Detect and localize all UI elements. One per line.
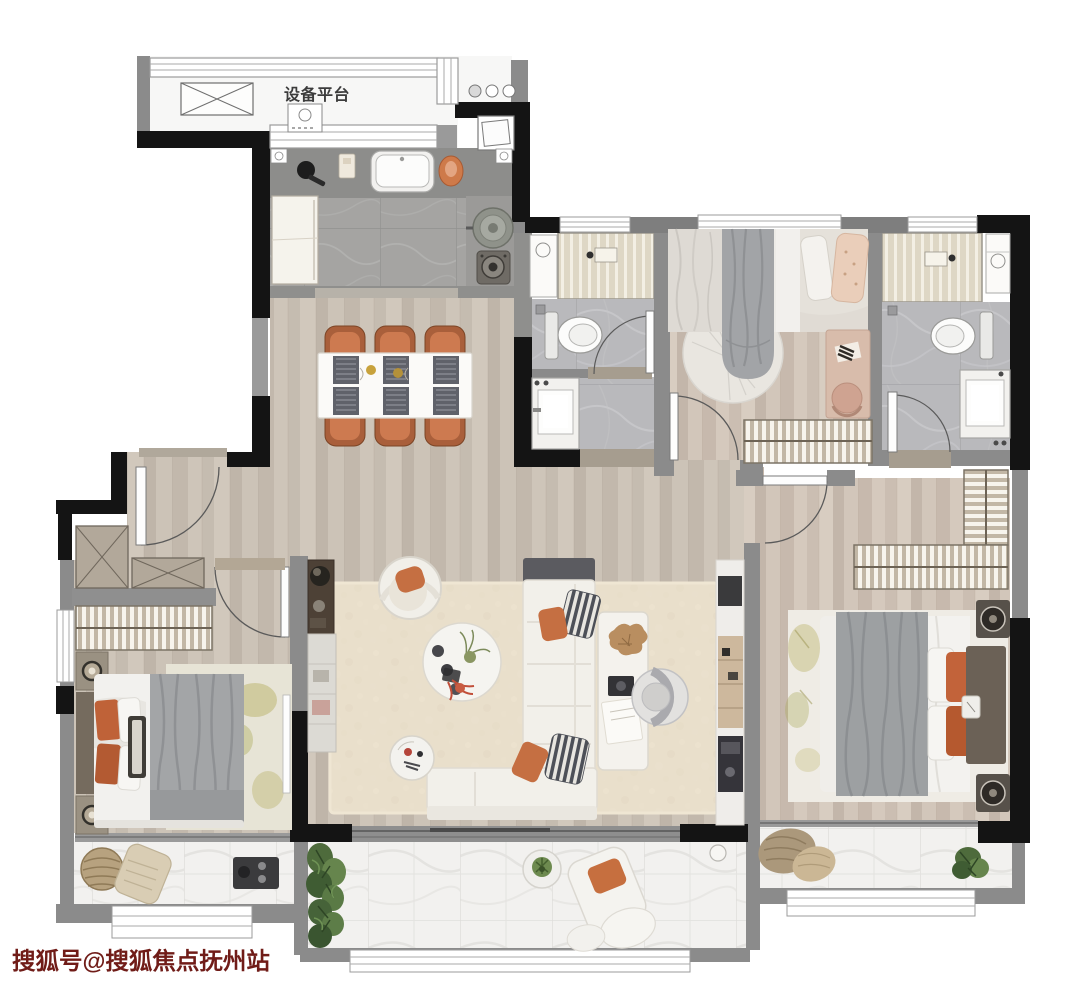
svg-text:设备平台: 设备平台 bbox=[284, 85, 350, 104]
svg-text:搜狐号@搜狐焦点抚州站: 搜狐号@搜狐焦点抚州站 bbox=[12, 947, 270, 974]
